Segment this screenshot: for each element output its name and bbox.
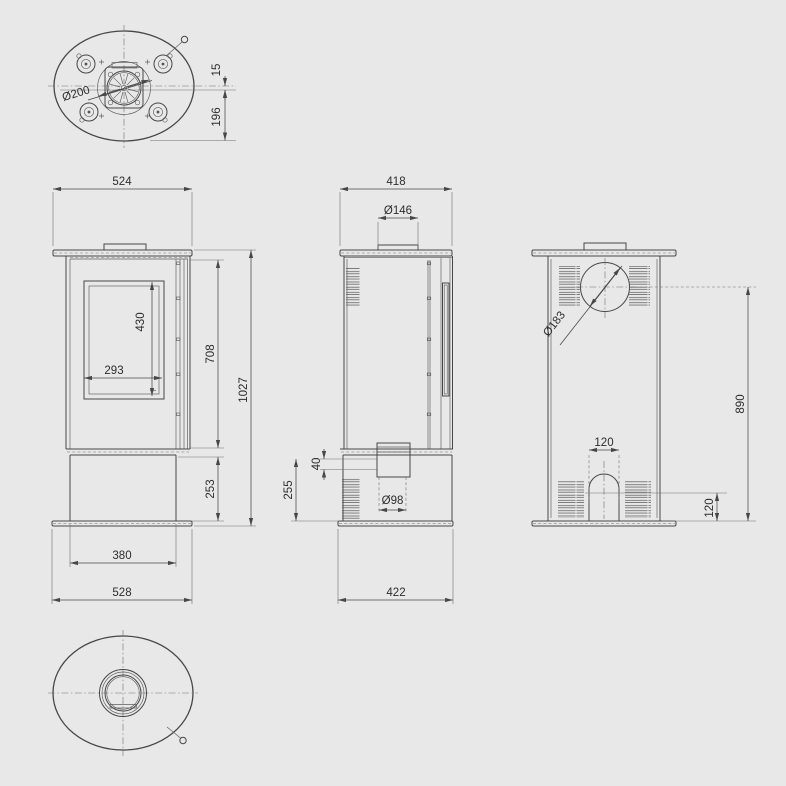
technical-drawing-canvas: Ø200 15 196 524 430 bbox=[0, 0, 786, 786]
dim-front-total-height: 1027 bbox=[238, 377, 250, 403]
vent-grille-bottom bbox=[342, 477, 360, 519]
dim-side-intake-offset: 40 bbox=[311, 458, 323, 471]
pedestal bbox=[70, 455, 176, 521]
dim-side-base-depth: 422 bbox=[386, 587, 405, 599]
vent-grille-back-bottom-left bbox=[558, 481, 584, 518]
dim-front-glass-width: 293 bbox=[104, 365, 123, 377]
dim-top-flue-diameter: Ø200 bbox=[61, 84, 91, 104]
dim-front-base-width: 528 bbox=[112, 587, 131, 599]
vent-grille-top bbox=[346, 267, 360, 307]
dim-arrow bbox=[605, 268, 620, 287]
dim-top-center-depth: 196 bbox=[211, 107, 223, 126]
extension-line bbox=[178, 457, 224, 521]
technical-drawing-page: Ø200 15 196 524 430 bbox=[0, 0, 786, 786]
top-view: Ø200 15 196 bbox=[48, 25, 236, 148]
back-view: Ø183 890 120 120 bbox=[532, 243, 756, 526]
extension-line bbox=[53, 192, 192, 246]
dim-arrow bbox=[590, 287, 605, 306]
dim-back-flue-center-height: 890 bbox=[735, 394, 747, 413]
air-intake-box bbox=[377, 443, 410, 477]
bottom-view bbox=[48, 630, 198, 756]
body-outline bbox=[66, 256, 190, 449]
vent-grille-back-top-left bbox=[559, 266, 580, 307]
vent-grille-back-top-right bbox=[629, 266, 650, 307]
dim-back-rear-flue-diameter: Ø183 bbox=[541, 309, 568, 339]
door-frame bbox=[70, 259, 188, 449]
hinge-marks bbox=[177, 262, 181, 416]
burner-mounts bbox=[77, 54, 172, 122]
body-inner-line bbox=[344, 258, 452, 449]
dim-front-glass-height: 430 bbox=[135, 312, 147, 331]
extension-line bbox=[320, 459, 377, 470]
extension-line bbox=[340, 192, 452, 246]
flue-collar-front bbox=[104, 244, 146, 250]
side-glass-inner bbox=[444, 285, 447, 394]
flue-collar-side bbox=[378, 245, 418, 250]
flue-collar-back bbox=[584, 243, 626, 250]
door-edge-lines bbox=[428, 258, 450, 449]
dim-front-base-height: 253 bbox=[205, 479, 217, 498]
dim-side-flue-collar: Ø146 bbox=[384, 205, 412, 217]
door-hinge-strip bbox=[176, 259, 188, 449]
body-outline-side bbox=[344, 256, 453, 449]
dim-back-arch-height: 120 bbox=[704, 498, 716, 517]
side-view: 418 Ø146 40 255 Ø98 422 bbox=[283, 176, 453, 604]
dim-top-offset: 15 bbox=[211, 64, 223, 77]
side-glass-outer bbox=[443, 283, 450, 396]
dim-back-arch-width: 120 bbox=[594, 437, 613, 449]
dim-front-top-width: 524 bbox=[112, 176, 132, 188]
dim-side-intake-diameter: Ø98 bbox=[382, 495, 404, 507]
dim-front-body-width: 380 bbox=[112, 550, 131, 562]
dim-side-depth: 418 bbox=[386, 176, 405, 188]
vent-grille-back-bottom-right bbox=[625, 481, 651, 518]
dim-front-upper-height: 708 bbox=[205, 344, 217, 363]
front-view: 524 430 293 708 253 1027 380 528 bbox=[52, 176, 256, 604]
dim-side-intake-center-height: 255 bbox=[283, 480, 295, 499]
bottom-crosshair bbox=[48, 630, 198, 756]
